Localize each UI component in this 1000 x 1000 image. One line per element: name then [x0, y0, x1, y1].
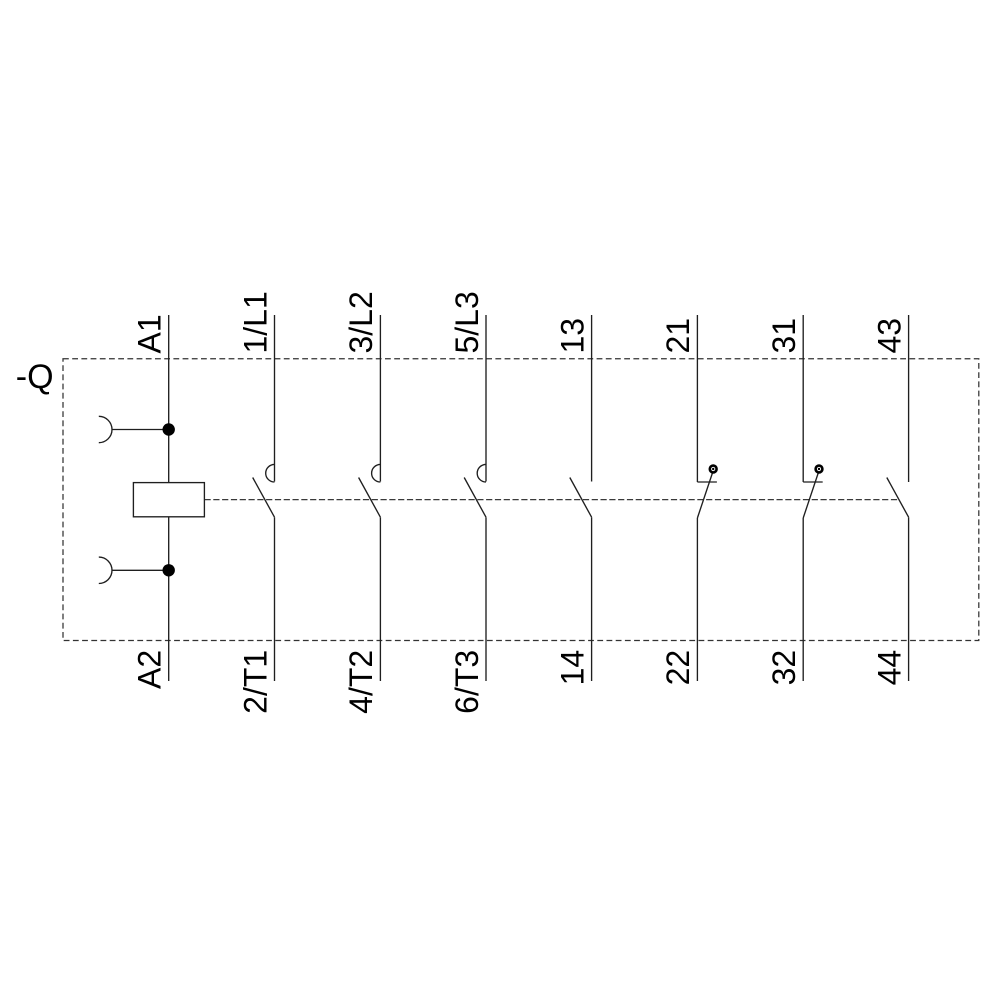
svg-text:22: 22: [660, 650, 696, 686]
svg-text:32: 32: [766, 650, 802, 686]
svg-text:13: 13: [554, 318, 590, 354]
svg-text:-Q: -Q: [16, 358, 54, 396]
svg-text:5/L3: 5/L3: [449, 291, 485, 353]
svg-text:A2: A2: [132, 650, 168, 689]
svg-text:21: 21: [660, 318, 696, 354]
svg-text:43: 43: [871, 318, 907, 354]
svg-text:3/L2: 3/L2: [343, 291, 379, 353]
svg-text:31: 31: [766, 318, 802, 354]
svg-text:1/L1: 1/L1: [237, 291, 273, 353]
svg-text:A1: A1: [132, 314, 168, 353]
svg-text:14: 14: [554, 650, 590, 686]
svg-text:6/T3: 6/T3: [449, 650, 485, 714]
svg-text:44: 44: [871, 650, 907, 686]
svg-text:2/T1: 2/T1: [237, 650, 273, 714]
svg-text:4/T2: 4/T2: [343, 650, 379, 714]
